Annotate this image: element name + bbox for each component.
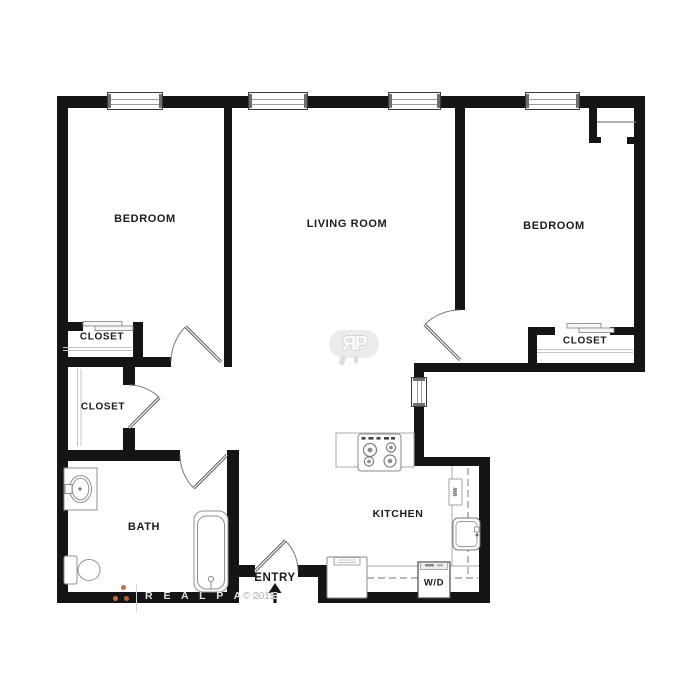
microwave-label: MW <box>453 487 459 496</box>
room-label-living-room: LIVING ROOM <box>307 218 388 230</box>
bathtub <box>194 511 228 592</box>
room-label-closet-bedroom2: CLOSET <box>563 336 607 347</box>
watermark-divider <box>136 584 137 612</box>
room-label-entry: ENTRY <box>254 572 296 584</box>
floor-plan: ЯP <box>0 0 697 697</box>
watermark-dot <box>124 596 129 601</box>
room-label-bedroom2: BEDROOM <box>523 220 585 232</box>
sink-vanity <box>64 468 97 510</box>
room-label-kitchen: KITCHEN <box>373 508 424 520</box>
bypass-closet-doors <box>83 322 614 333</box>
watermark-copyright: © 2015 <box>243 591 275 602</box>
room-label-closet-hall: CLOSET <box>81 402 125 413</box>
room-label-bedroom1: BEDROOM <box>114 213 176 225</box>
room-label-bath: BATH <box>128 521 160 533</box>
plan-graphics <box>0 0 697 697</box>
watermark-dot <box>121 585 126 590</box>
toilet <box>64 556 100 584</box>
closet-shelf-line <box>63 348 633 447</box>
watermark-dot <box>113 596 118 601</box>
kitchen-sink <box>453 518 480 550</box>
stove <box>358 434 401 471</box>
room-label-closet-bedroom1: CLOSET <box>80 332 124 343</box>
refrigerator <box>327 557 367 598</box>
washer-dryer-label: W/D <box>424 578 444 589</box>
